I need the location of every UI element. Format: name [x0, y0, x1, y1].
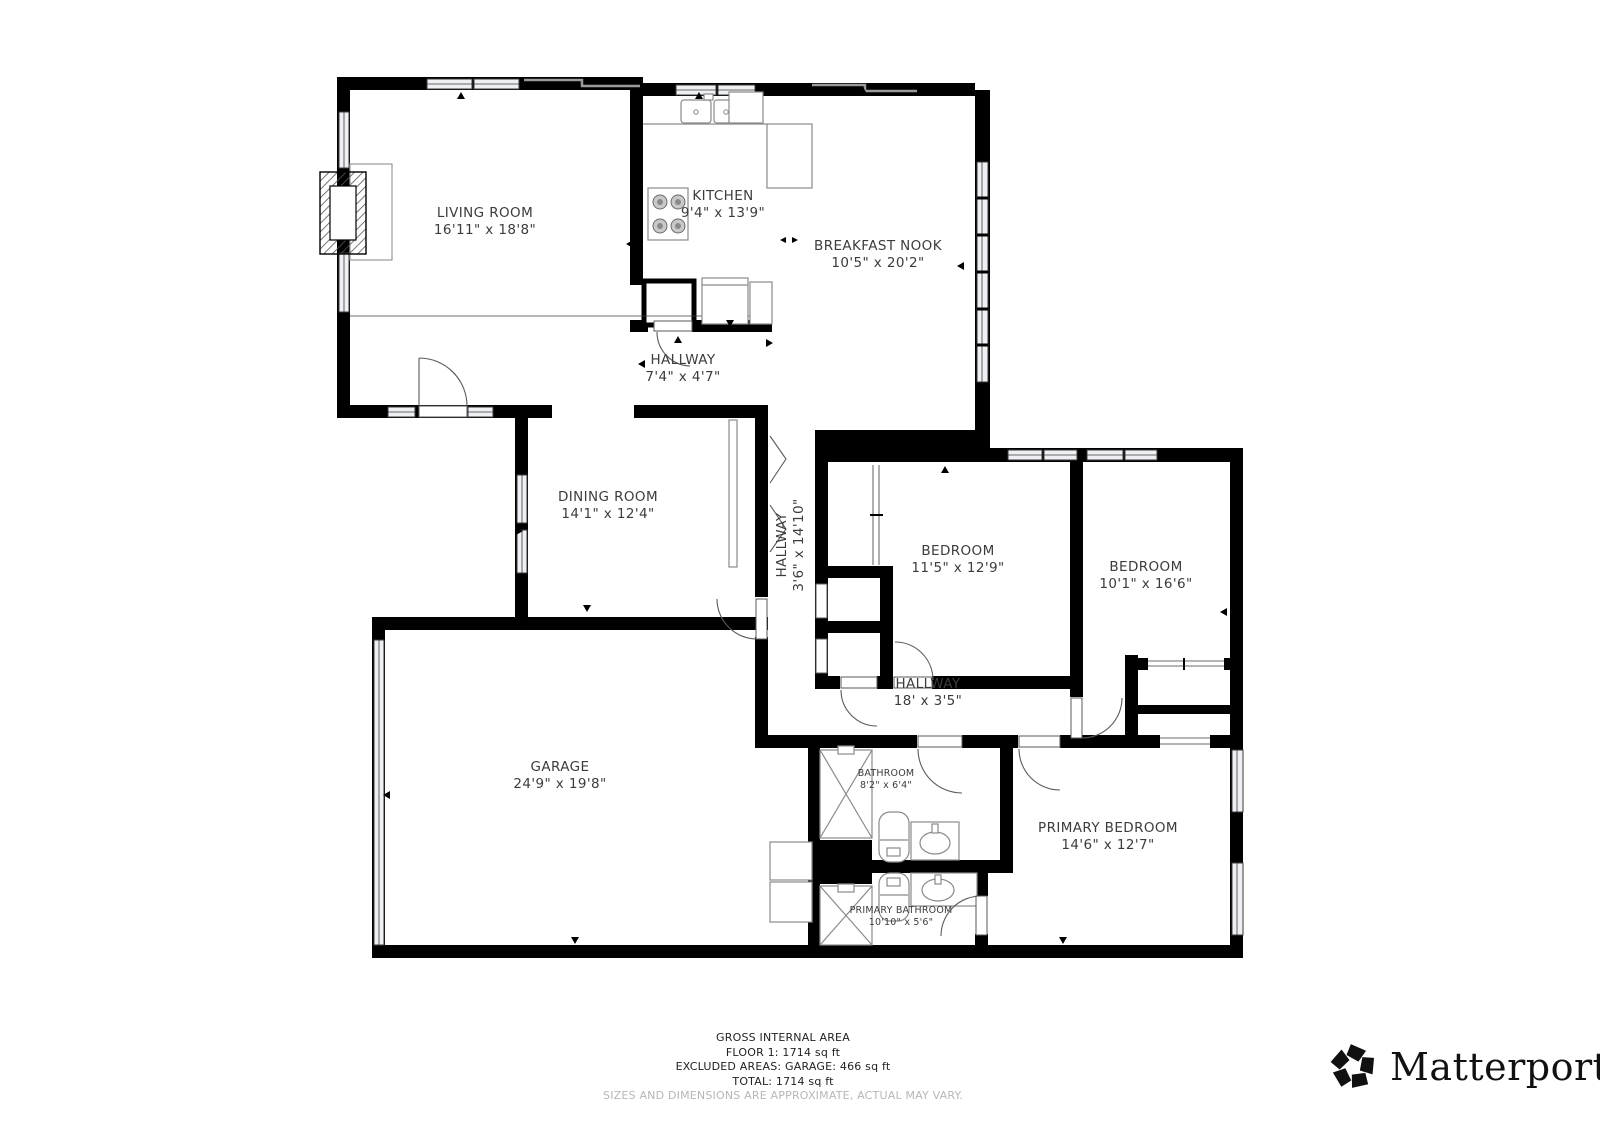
room-label-bedroom-1: BEDROOM 11'5" x 12'9": [911, 543, 1004, 577]
floor1-area: FLOOR 1: 1714 sq ft: [603, 1046, 963, 1061]
dryer-icon: [770, 882, 812, 922]
total-area: TOTAL: 1714 sq ft: [603, 1075, 963, 1090]
kitchen-sink-icon: [681, 100, 711, 123]
room-label-primary-bedroom: PRIMARY BEDROOM 14'6" x 12'7": [1038, 820, 1178, 854]
room-label-hallway-vertical: HALLWAY 3'6" x 14'10": [774, 498, 808, 591]
fridge-icon: [729, 92, 763, 123]
room-label-dining-room: DINING ROOM 14'1" x 12'4": [558, 489, 658, 523]
room-label-bedroom-2: BEDROOM 10'1" x 16'6": [1099, 559, 1192, 593]
room-label-hallway-north: HALLWAY 7'4" x 4'7": [645, 352, 720, 386]
matterport-logo: Matterport ®: [1328, 1042, 1600, 1092]
room-label-kitchen: KITCHEN 9'4" x 13'9": [681, 188, 765, 222]
disclaimer-text: SIZES AND DIMENSIONS ARE APPROXIMATE, AC…: [603, 1089, 963, 1104]
room-label-garage: GARAGE 24'9" x 19'8": [513, 759, 606, 793]
room-label-living-room: LIVING ROOM 16'11" x 18'8": [434, 205, 536, 239]
bathroom-sink-icon: [911, 822, 959, 860]
matterport-logo-icon: [1328, 1042, 1378, 1092]
room-label-breakfast-nook: BREAKFAST NOOK 10'5" x 20'2": [814, 238, 942, 272]
floor-plan-page: LIVING ROOM 16'11" x 18'8" KITCHEN 9'4" …: [0, 0, 1600, 1131]
front-door-icon: [419, 358, 467, 406]
bifold-door-icon: [770, 436, 786, 483]
matterport-wordmark: Matterport: [1390, 1045, 1600, 1089]
gross-internal-area-label: GROSS INTERNAL AREA: [603, 1031, 963, 1046]
bathtub-icon: [879, 812, 909, 862]
shower-icon: [820, 746, 872, 838]
kitchen-faucet-icon: [704, 94, 713, 100]
cabinet: [750, 282, 772, 324]
room-label-hallway-south: HALLWAY 18' x 3'5": [894, 676, 963, 710]
room-label-bathroom: BATHROOM 8'2" x 6'4": [858, 768, 915, 792]
room-label-primary-bathroom: PRIMARY BATHROOM 10'10" x 5'6": [850, 905, 953, 929]
washer-icon: [770, 842, 812, 880]
kitchen-peninsula: [767, 124, 812, 188]
excluded-areas: EXCLUDED AREAS: GARAGE: 466 sq ft: [603, 1060, 963, 1075]
bathroom-sink-icon: [911, 873, 977, 906]
area-summary: GROSS INTERNAL AREA FLOOR 1: 1714 sq ft …: [603, 1031, 963, 1104]
